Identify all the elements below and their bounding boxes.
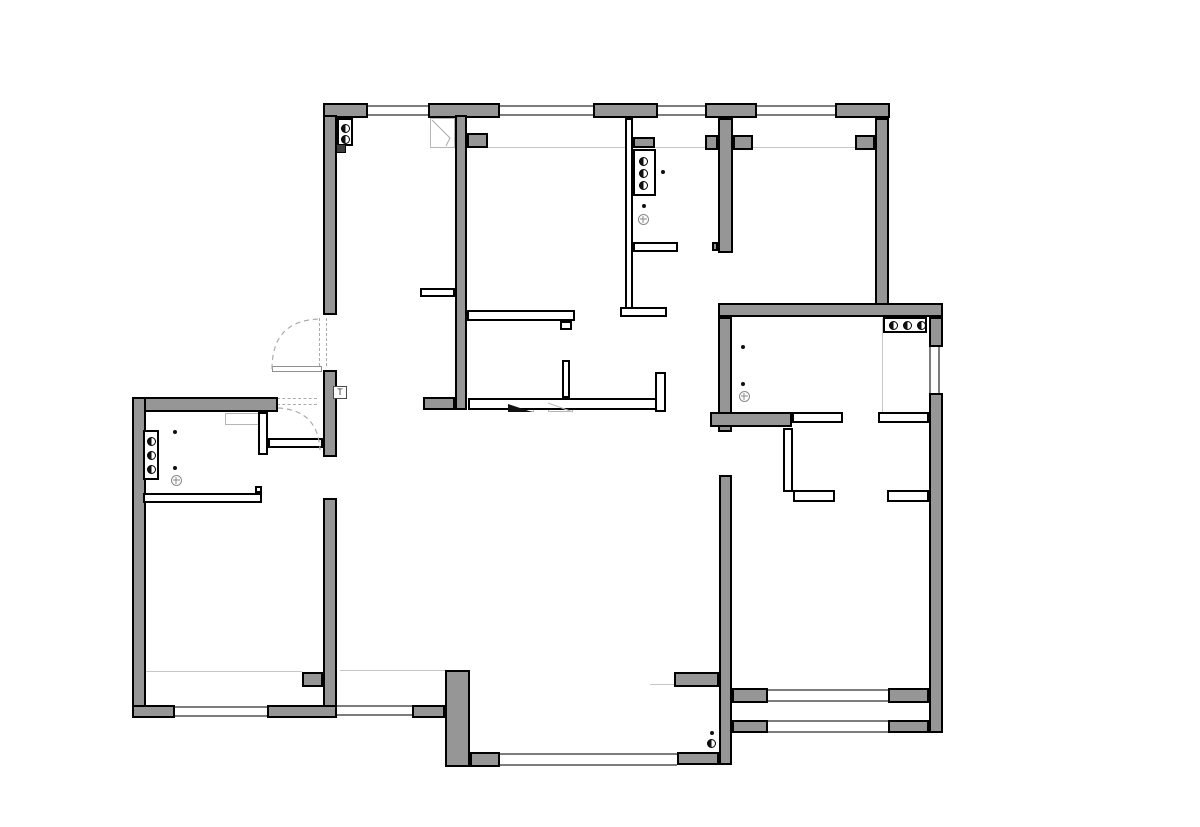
wall-segment: [855, 135, 875, 150]
reference-line: [340, 670, 445, 671]
floor-drain-icon: [739, 391, 750, 402]
wall-segment: [267, 705, 337, 718]
wall-segment: [705, 103, 757, 118]
appliance-box: [225, 413, 260, 425]
radiator-coil-icon: [341, 135, 350, 144]
radiator-coil-icon: [147, 437, 156, 446]
window: [929, 347, 940, 393]
window: [175, 706, 267, 717]
door-swing-arc: [272, 319, 322, 369]
wall-segment: [732, 688, 768, 703]
wall-segment: [467, 133, 488, 148]
partition-wall: [620, 307, 667, 317]
window: [368, 105, 428, 116]
wall-segment: [888, 720, 929, 733]
wall-segment: [712, 242, 718, 251]
wall-segment: [732, 720, 768, 733]
wall-segment: [445, 670, 470, 767]
partition-wall: [633, 242, 678, 252]
window: [757, 105, 835, 116]
partition-wall: [143, 493, 262, 503]
reference-line: [650, 684, 675, 685]
partition-wall: [420, 288, 455, 297]
t-marker-label: T: [333, 386, 347, 399]
partition-wall: [258, 412, 268, 455]
window: [337, 705, 412, 716]
wall-segment: [323, 498, 337, 718]
wall-segment: [423, 397, 455, 410]
radiator-coil-icon: [707, 739, 716, 748]
wall-segment: [132, 397, 278, 412]
flue-box: [430, 118, 455, 148]
wall-segment: [733, 135, 753, 150]
wall-segment: [455, 115, 467, 410]
meter-box: [336, 144, 346, 153]
point-marker: [642, 204, 646, 208]
radiator-coil-icon: [639, 169, 648, 178]
wall-segment: [875, 118, 889, 317]
wall-segment: [929, 393, 943, 733]
door-leaf: [272, 366, 322, 372]
partition-wall: [792, 412, 843, 423]
dashed-opening-line: [326, 318, 327, 366]
dashed-opening-line: [277, 404, 317, 405]
floor-drain-icon: [171, 475, 182, 486]
wall-segment: [633, 137, 655, 148]
point-marker: [173, 430, 177, 434]
wall-segment: [718, 118, 733, 253]
partition-wall: [887, 490, 929, 502]
window: [768, 720, 888, 733]
partition-wall: [655, 372, 666, 412]
wall-segment: [718, 303, 943, 317]
point-marker: [741, 382, 745, 386]
window: [658, 105, 705, 116]
point-marker: [173, 466, 177, 470]
wall-segment: [929, 317, 943, 347]
radiator-coil-icon: [147, 451, 156, 460]
radiator-coil-icon: [147, 465, 156, 474]
window: [768, 689, 888, 702]
floor-plan-canvas: T: [0, 0, 1200, 827]
partition-wall: [625, 118, 633, 310]
reference-line: [488, 147, 872, 148]
wall-segment: [132, 705, 175, 718]
point-marker: [710, 731, 714, 735]
radiator-coil-icon: [639, 157, 648, 166]
point-marker: [741, 345, 745, 349]
radiator-coil-icon: [889, 321, 898, 330]
wall-segment: [323, 115, 337, 315]
wall-segment: [705, 135, 718, 150]
wall-segment: [412, 705, 445, 718]
partition-wall: [793, 490, 835, 502]
point-marker: [661, 170, 665, 174]
wall-segment: [470, 752, 500, 767]
window: [500, 105, 593, 116]
floor-drain-icon: [638, 214, 649, 225]
wall-segment: [888, 688, 929, 703]
reference-line: [145, 671, 302, 672]
dashed-opening-line: [277, 398, 317, 399]
partition-wall: [467, 310, 575, 321]
radiator-coil-icon: [639, 181, 648, 190]
wall-segment: [710, 412, 792, 427]
radiator-coil-icon: [903, 321, 912, 330]
dashed-opening-line: [319, 318, 320, 366]
partition-wall: [878, 412, 929, 423]
radiator-coil-icon: [341, 124, 350, 133]
wall-segment: [674, 672, 719, 687]
wall-segment: [323, 370, 337, 457]
partition-wall: [268, 438, 323, 448]
wall-segment: [835, 103, 890, 118]
wall-segment: [719, 475, 732, 765]
partition-wall: [560, 321, 572, 330]
window: [500, 753, 677, 766]
floor-plan-overlay: [0, 0, 1200, 827]
wall-segment: [302, 672, 323, 687]
wall-segment: [677, 752, 719, 765]
partition-wall: [255, 486, 262, 493]
partition-wall: [783, 428, 793, 492]
partition-wall: [468, 398, 658, 410]
partition-wall: [562, 360, 570, 398]
radiator-coil-icon: [917, 321, 926, 330]
wall-segment: [593, 103, 658, 118]
